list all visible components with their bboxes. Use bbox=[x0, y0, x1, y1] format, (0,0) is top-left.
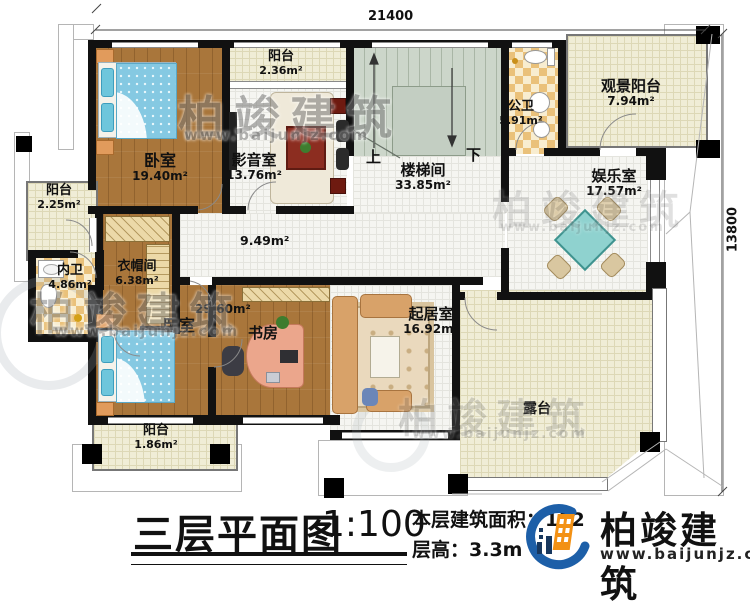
plant bbox=[300, 142, 311, 153]
column bbox=[210, 444, 230, 464]
label-balcony-left: 阳台 2.25m² bbox=[37, 184, 80, 211]
window-balcony-top-rail bbox=[234, 42, 340, 48]
laptop bbox=[266, 372, 280, 383]
wall-ent-left-a bbox=[501, 156, 509, 202]
toilet-tank bbox=[547, 48, 555, 66]
floor-height-label: 层高： bbox=[412, 539, 469, 561]
title-block: 三层平面图 1:100 本层建筑面积：182 ² 层高：3.3m 柏竣建筑 ww… bbox=[0, 498, 750, 573]
armchair bbox=[362, 388, 378, 406]
label-bath-inner: 内卫 4.86m² bbox=[48, 264, 91, 291]
label-stairs-up: 上 bbox=[366, 146, 381, 167]
wall-bath-right bbox=[558, 40, 566, 156]
label-stairs-down: 下 bbox=[466, 144, 481, 165]
faucet-icon bbox=[512, 58, 518, 64]
wall-ent-top-a bbox=[558, 148, 600, 156]
column bbox=[640, 432, 660, 452]
room-terrace-floor bbox=[460, 290, 656, 480]
wall-bathinner-left bbox=[28, 250, 36, 342]
wall-hall-south-b bbox=[212, 277, 483, 285]
label-balcony-bottom: 阳台 1.86m² bbox=[134, 424, 177, 451]
room-area: 7.94m² bbox=[601, 95, 661, 108]
wall-ent-bottom-b bbox=[497, 292, 666, 300]
terrace-parapet-bottom bbox=[452, 477, 608, 491]
side-table bbox=[330, 178, 346, 194]
window-balcony-left-door bbox=[89, 218, 97, 252]
nightstand bbox=[96, 140, 114, 155]
label-study-name: 书房 bbox=[248, 322, 278, 343]
room-area: 2.36m² bbox=[259, 65, 302, 77]
label-view-balcony: 观景阳台 7.94m² bbox=[601, 78, 661, 108]
room-name: 楼梯间 bbox=[395, 162, 451, 179]
label-media: 影音室 13.76m² bbox=[226, 152, 282, 182]
room-area: 2.25m² bbox=[37, 199, 80, 211]
column bbox=[16, 136, 32, 152]
room-area: 6.38m² bbox=[115, 275, 158, 287]
wall-bedroom1-bottom bbox=[88, 206, 198, 214]
room-name: 阳台 bbox=[37, 184, 80, 199]
column bbox=[696, 26, 720, 44]
room-area: 19.40m² bbox=[132, 170, 188, 183]
room-area: 1.86m² bbox=[134, 439, 177, 451]
floor-height-line: 层高：3.3m bbox=[412, 535, 522, 562]
wall-study-left-b bbox=[208, 367, 216, 420]
wardrobe bbox=[105, 216, 170, 242]
recliner bbox=[336, 120, 349, 142]
window-ent-right bbox=[650, 180, 660, 262]
room-name: 影音室 bbox=[226, 152, 282, 169]
label-terrace-name: 露台 bbox=[523, 398, 551, 418]
sofa bbox=[332, 296, 358, 414]
pillow bbox=[101, 103, 114, 132]
window-stair-top bbox=[372, 42, 488, 48]
wall-ent-right-a bbox=[646, 148, 666, 180]
room-name: 卧室 bbox=[132, 152, 188, 170]
column bbox=[324, 478, 344, 498]
terrace-parapet-right bbox=[652, 288, 667, 442]
label-living: 起居室 16.92m² bbox=[403, 306, 459, 336]
sheet-fold bbox=[116, 92, 147, 139]
room-area: 33.85m² bbox=[395, 179, 451, 192]
recliner bbox=[336, 148, 349, 170]
pillow bbox=[101, 369, 114, 396]
room-name: 阳台 bbox=[259, 50, 302, 65]
dim-right-label: 13800 bbox=[726, 200, 741, 260]
label-bath-public: 公卫 5.91m² bbox=[499, 100, 542, 127]
wall-cloak-right bbox=[172, 213, 180, 326]
eave-left-upper bbox=[58, 24, 74, 150]
bed bbox=[98, 62, 176, 138]
pillow bbox=[101, 336, 114, 363]
sheet-fold bbox=[116, 358, 145, 403]
room-area: 13.76m² bbox=[226, 169, 282, 182]
room-area: 5.91m² bbox=[499, 115, 542, 127]
column bbox=[696, 140, 720, 158]
blanket bbox=[116, 331, 175, 403]
wall-bedroom1-left bbox=[88, 40, 96, 190]
wall-bathinner-bottom bbox=[28, 334, 104, 342]
pillow bbox=[101, 68, 114, 97]
coffee-table bbox=[370, 336, 400, 378]
title-underline bbox=[131, 552, 407, 565]
window-living bbox=[342, 432, 448, 439]
floor-height-value: 3.3m bbox=[469, 539, 522, 561]
room-name: 阳台 bbox=[134, 424, 177, 439]
label-bedroom2-name: 卧室 bbox=[163, 312, 195, 336]
wall-bathinner-top bbox=[28, 250, 78, 258]
label-entertainment: 娱乐室 17.57m² bbox=[586, 168, 642, 198]
wall-hall-south-a bbox=[180, 277, 190, 285]
nightstand bbox=[96, 402, 114, 416]
column bbox=[82, 444, 102, 464]
room-area: 17.57m² bbox=[586, 185, 642, 198]
office-chair bbox=[222, 346, 244, 376]
wall-stair-bath bbox=[501, 40, 509, 156]
brand-logo-icon bbox=[522, 498, 598, 572]
room-name: 观景阳台 bbox=[601, 78, 661, 95]
window-study bbox=[243, 417, 323, 424]
label-bedroom1: 卧室 19.40m² bbox=[132, 152, 188, 183]
stair-landing bbox=[392, 86, 466, 156]
plan-scale: 1:100 bbox=[322, 504, 426, 545]
blanket bbox=[116, 63, 177, 139]
wall-bath-bottom-a bbox=[501, 148, 516, 156]
monitor bbox=[280, 350, 298, 363]
window-bath-top bbox=[512, 42, 552, 48]
room-name: 娱乐室 bbox=[586, 168, 642, 185]
label-bedroom2-area: 29.60m² bbox=[195, 302, 251, 316]
side-table bbox=[330, 98, 346, 114]
floor-drain bbox=[74, 314, 82, 322]
column bbox=[448, 474, 468, 494]
room-name: 起居室 bbox=[403, 306, 459, 323]
bed bbox=[98, 330, 174, 402]
hall-floor-a bbox=[180, 213, 505, 277]
room-name: 公卫 bbox=[499, 100, 542, 115]
wall-media-bottom-b bbox=[276, 206, 354, 214]
dim-top-label: 21400 bbox=[368, 9, 413, 24]
label-hall-area: 9.49m² bbox=[240, 233, 289, 248]
toilet-icon bbox=[524, 50, 547, 64]
label-stairwell: 楼梯间 33.85m² bbox=[395, 162, 451, 192]
window-bedroom1-top bbox=[112, 42, 198, 48]
room-name: 衣帽间 bbox=[115, 260, 158, 275]
label-balcony-top: 阳台 2.36m² bbox=[259, 50, 302, 77]
wardrobe bbox=[242, 287, 330, 302]
nightstand bbox=[96, 314, 114, 328]
brand-url: www.baijunjz.com bbox=[600, 545, 750, 563]
room-name: 内卫 bbox=[48, 264, 91, 279]
room-area: 4.86m² bbox=[48, 279, 91, 291]
room-area: 16.92m² bbox=[403, 323, 459, 336]
label-cloakroom: 衣帽间 6.38m² bbox=[115, 260, 158, 287]
floor-plan: 21400 13800 卧室 19.40m² 阳台 2.36m² 影音室 13.… bbox=[0, 0, 750, 573]
wall-media-bottom-a bbox=[222, 206, 246, 214]
window-balcony-media-divider bbox=[230, 81, 346, 89]
